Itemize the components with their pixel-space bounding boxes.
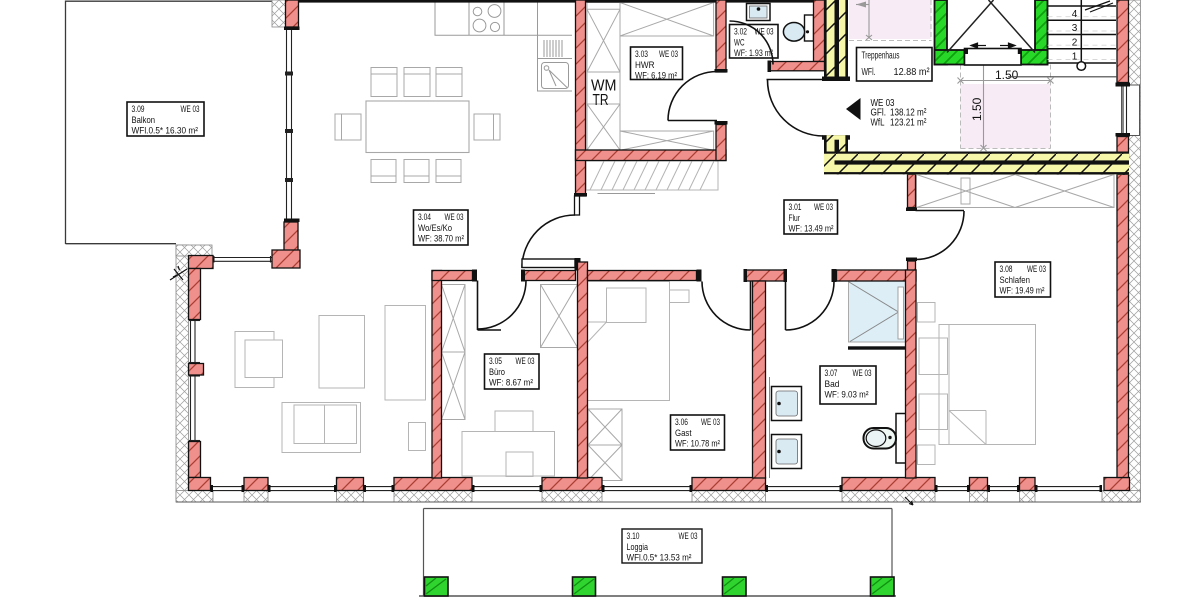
svg-text:WE 03: WE 03 — [516, 356, 535, 367]
svg-text:1.50: 1.50 — [970, 97, 984, 121]
svg-text:WE 03: WE 03 — [679, 531, 698, 542]
svg-text:WfL: WfL — [871, 117, 885, 128]
svg-text:WE 03: WE 03 — [659, 49, 678, 60]
svg-text:2: 2 — [1072, 38, 1078, 49]
svg-text:WE 03: WE 03 — [1027, 264, 1046, 275]
svg-text:3.05: 3.05 — [489, 356, 502, 367]
svg-text:3.07: 3.07 — [825, 368, 838, 379]
svg-text:WFl.: WFl. — [862, 67, 876, 78]
svg-text:4: 4 — [1072, 9, 1078, 20]
svg-text:WFl.0.5* 16.30 m²: WFl.0.5* 16.30 m² — [132, 125, 199, 136]
svg-text:3.08: 3.08 — [1000, 264, 1013, 275]
svg-text:Treppenhaus: Treppenhaus — [862, 51, 900, 62]
svg-text:WF: 10.78 m²: WF: 10.78 m² — [675, 438, 720, 449]
svg-text:3: 3 — [1072, 23, 1078, 34]
svg-text:123.21 m²: 123.21 m² — [890, 117, 927, 128]
svg-text:WF: 13.49 m²: WF: 13.49 m² — [789, 223, 834, 234]
svg-text:3.09: 3.09 — [132, 104, 145, 115]
svg-text:WF: 38.70 m²: WF: 38.70 m² — [418, 233, 464, 244]
svg-text:WE 03: WE 03 — [701, 417, 720, 428]
svg-text:WE 03: WE 03 — [853, 368, 872, 379]
svg-text:WF: 9.03 m²: WF: 9.03 m² — [825, 389, 869, 400]
svg-text:3.02: 3.02 — [734, 27, 747, 38]
svg-text:WE 03: WE 03 — [181, 104, 200, 115]
svg-text:1: 1 — [1072, 52, 1078, 63]
svg-text:WE 03: WE 03 — [814, 202, 833, 213]
svg-text:3.06: 3.06 — [675, 417, 688, 428]
svg-text:TR: TR — [593, 92, 609, 109]
svg-text:3.01: 3.01 — [789, 202, 802, 213]
svg-text:WE 03: WE 03 — [445, 212, 464, 223]
svg-text:12.88 m²: 12.88 m² — [894, 67, 931, 78]
svg-text:WFl.0.5* 13.53 m²: WFl.0.5* 13.53 m² — [627, 552, 692, 563]
svg-text:WF: 8.67 m²: WF: 8.67 m² — [489, 377, 533, 388]
svg-text:1.50: 1.50 — [995, 68, 1019, 82]
svg-text:3.04: 3.04 — [418, 212, 431, 223]
svg-text:WF: 1.93 m²: WF: 1.93 m² — [734, 48, 773, 59]
svg-text:3.10: 3.10 — [627, 531, 640, 542]
svg-text:WF: 6.19 m²: WF: 6.19 m² — [635, 70, 677, 81]
svg-text:3.03: 3.03 — [635, 49, 648, 60]
svg-text:WF: 19.49 m²: WF: 19.49 m² — [1000, 285, 1045, 296]
